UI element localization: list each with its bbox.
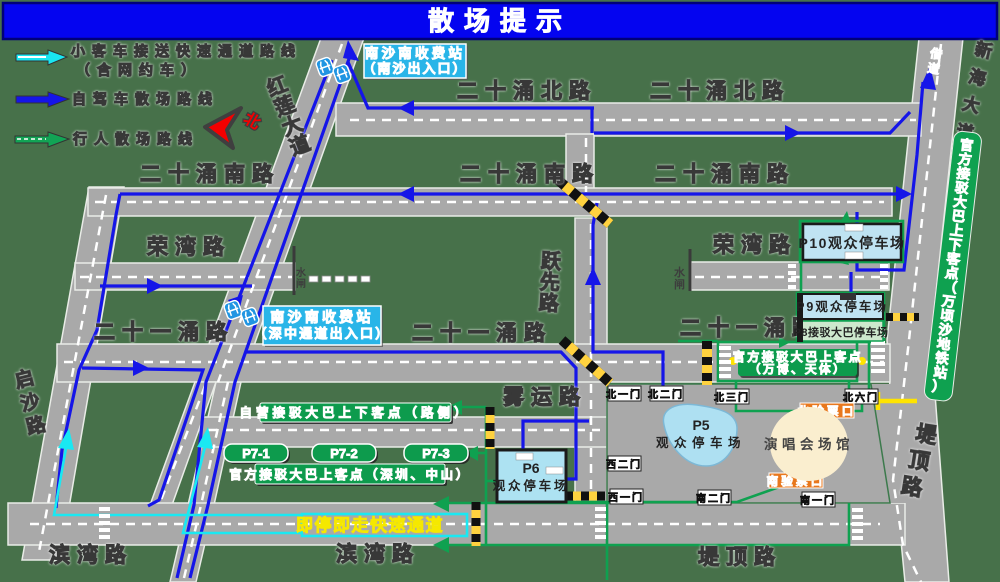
svg-text:南沙南收费站: 南沙南收费站 <box>270 309 373 325</box>
svg-text:P5: P5 <box>692 417 709 433</box>
svg-text:南二门: 南二门 <box>696 492 732 505</box>
svg-text:二十一涌路: 二十一涌路 <box>94 320 234 344</box>
svg-text:西一门: 西一门 <box>608 491 644 504</box>
svg-text:二十涌南路: 二十涌南路 <box>460 162 600 186</box>
svg-text:西二门: 西二门 <box>606 458 642 471</box>
svg-text:行人散场路线: 行人散场路线 <box>72 131 199 147</box>
svg-text:雾运路: 雾运路 <box>503 385 587 409</box>
svg-text:二十一涌路: 二十一涌路 <box>412 321 552 345</box>
svg-text:荣湾路: 荣湾路 <box>712 233 797 257</box>
svg-text:P7-2: P7-2 <box>330 446 357 461</box>
svg-text:二十涌南路: 二十涌南路 <box>655 162 795 186</box>
svg-text:滨湾路: 滨湾路 <box>49 543 133 567</box>
svg-text:P7-3: P7-3 <box>422 446 449 461</box>
svg-text:自营接驳大巴上下客点（路侧）: 自营接驳大巴上下客点（路侧） <box>239 405 470 420</box>
svg-text:P10观众停车场: P10观众停车场 <box>799 235 906 251</box>
svg-text:即停即走快速通道: 即停即走快速通道 <box>296 515 444 535</box>
svg-text:自驾车散场路线: 自驾车散场路线 <box>72 91 219 107</box>
svg-text:（深中通道出入口）: （深中通道出入口） <box>254 326 391 341</box>
svg-text:北一门: 北一门 <box>606 388 642 401</box>
svg-text:（万博、天体）: （万博、天体） <box>749 362 847 376</box>
svg-text:北二门: 北二门 <box>648 388 684 401</box>
svg-text:小客车接送快速通道路线: 小客车接送快速通道路线 <box>71 43 302 59</box>
svg-text:P7-1: P7-1 <box>242 446 269 461</box>
svg-text:P9观众停车场: P9观众停车场 <box>796 299 888 314</box>
svg-text:观众停车场: 观众停车场 <box>493 478 570 493</box>
svg-text:滨湾路: 滨湾路 <box>336 542 420 566</box>
svg-text:演唱会场馆: 演唱会场馆 <box>764 436 854 452</box>
svg-text:二十涌南路: 二十涌南路 <box>140 162 280 186</box>
svg-text:P8接驳大巴停车场: P8接驳大巴停车场 <box>794 325 889 339</box>
svg-text:北三门: 北三门 <box>714 391 750 404</box>
svg-text:堤顶路: 堤顶路 <box>698 545 782 569</box>
svg-text:P6: P6 <box>522 460 539 476</box>
svg-text:二十涌北路: 二十涌北路 <box>650 79 790 103</box>
svg-text:（南沙出入口）: （南沙出入口） <box>362 61 467 76</box>
svg-text:散场提示: 散场提示 <box>428 6 572 36</box>
svg-text:（含网约车）: （含网约车） <box>76 62 202 78</box>
svg-text:荣湾路: 荣湾路 <box>146 235 231 259</box>
svg-text:南一门: 南一门 <box>800 494 836 507</box>
svg-text:跃先路: 跃先路 <box>538 248 568 315</box>
svg-text:水闸: 水闸 <box>674 265 686 291</box>
svg-text:北六门: 北六门 <box>843 391 879 404</box>
svg-text:官方接驳大巴上客点（深圳、中山）: 官方接驳大巴上客点（深圳、中山） <box>229 467 471 482</box>
svg-text:南沙南收费站: 南沙南收费站 <box>365 45 465 61</box>
svg-text:官方接驳大巴上客点: 官方接驳大巴上客点 <box>733 349 864 364</box>
svg-text:水闸: 水闸 <box>295 266 307 290</box>
svg-text:观众停车场: 观众停车场 <box>656 435 746 450</box>
svg-text:二十涌北路: 二十涌北路 <box>457 79 597 103</box>
